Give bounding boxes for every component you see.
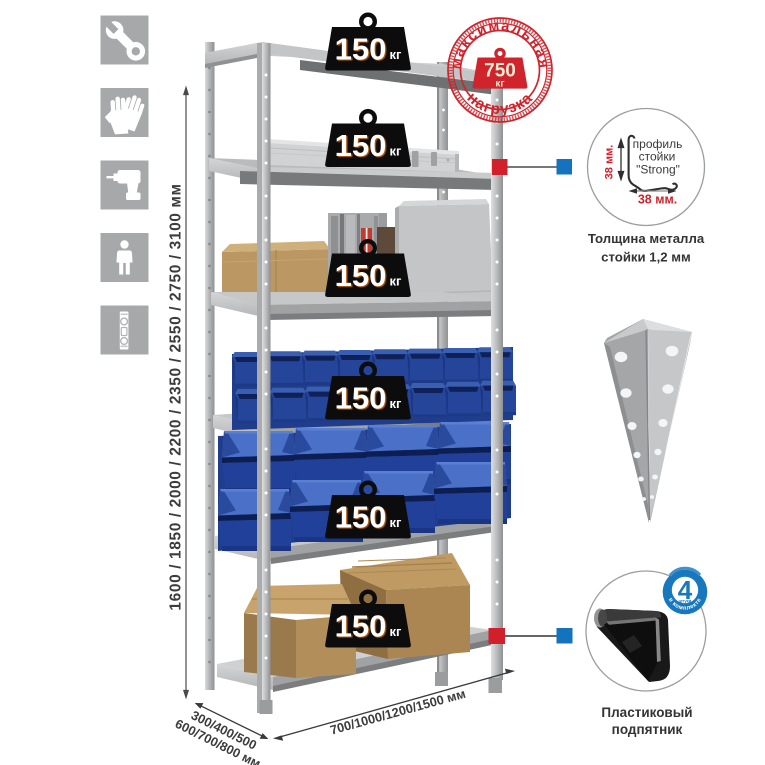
svg-text:1600 / 1850 / 2000 / 2200 / 23: 1600 / 1850 / 2000 / 2200 / 2350 / 2550 …	[168, 183, 185, 610]
svg-text:38 мм.: 38 мм.	[638, 193, 677, 207]
svg-text:38 мм.: 38 мм.	[604, 145, 616, 180]
svg-text:кг: кг	[495, 79, 504, 90]
svg-text:штуки: штуки	[679, 599, 692, 604]
svg-text:Пластиковый: Пластиковый	[601, 705, 692, 720]
svg-text:"Strong": "Strong"	[636, 163, 680, 177]
svg-text:стойки 1,2 мм: стойки 1,2 мм	[601, 250, 691, 265]
svg-text:подпятник: подпятник	[612, 722, 683, 737]
svg-text:стойки: стойки	[639, 150, 676, 164]
svg-text:Толщина металла: Толщина металла	[588, 231, 705, 246]
